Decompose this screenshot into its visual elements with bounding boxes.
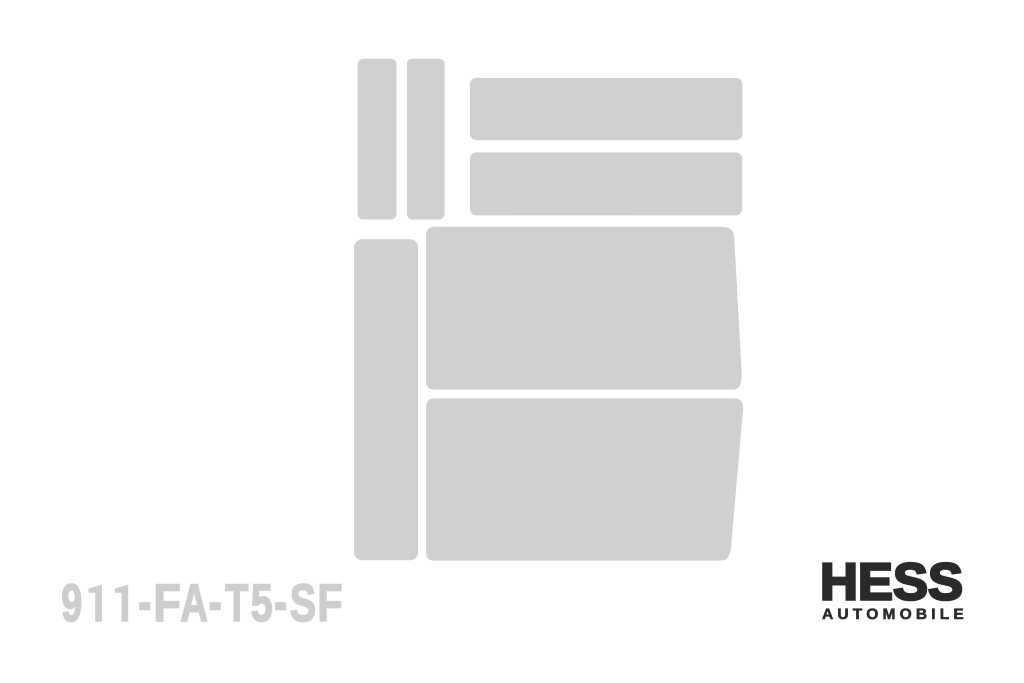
svg-text:HESS: HESS xyxy=(820,554,963,612)
svg-text:-: - xyxy=(138,573,151,632)
svg-text:F: F xyxy=(153,574,180,633)
svg-text:-: - xyxy=(209,573,222,632)
svg-text:AUTOMOBILE: AUTOMOBILE xyxy=(822,606,968,623)
svg-text:A: A xyxy=(180,574,208,633)
svg-text:9: 9 xyxy=(61,574,82,633)
svg-text:T: T xyxy=(225,574,248,633)
svg-text:S: S xyxy=(290,574,316,633)
svg-text:5: 5 xyxy=(251,574,273,633)
svg-text:-: - xyxy=(274,573,287,632)
svg-text:F: F xyxy=(317,574,342,633)
